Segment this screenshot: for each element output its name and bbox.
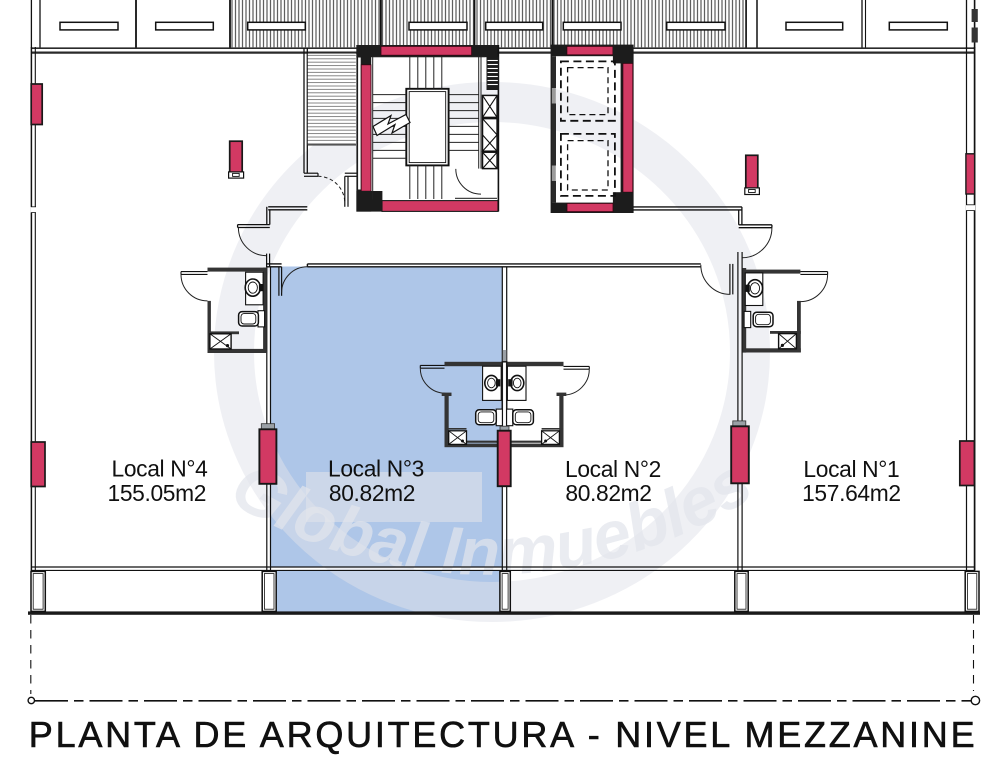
svg-text:80.82m2: 80.82m2 [565,480,651,506]
svg-text:80.82m2: 80.82m2 [329,480,415,506]
svg-text:Local N°2: Local N°2 [565,456,661,482]
svg-text:157.64m2: 157.64m2 [802,480,901,506]
svg-text:155.05m2: 155.05m2 [107,480,206,506]
svg-text:Local N°1: Local N°1 [803,456,899,482]
svg-text:Local N°3: Local N°3 [328,456,424,482]
svg-text:PLANTA DE ARQUITECTURA - NIVEL: PLANTA DE ARQUITECTURA - NIVEL MEZZANINE [29,714,978,755]
svg-text:Local N°4: Local N°4 [112,456,209,482]
